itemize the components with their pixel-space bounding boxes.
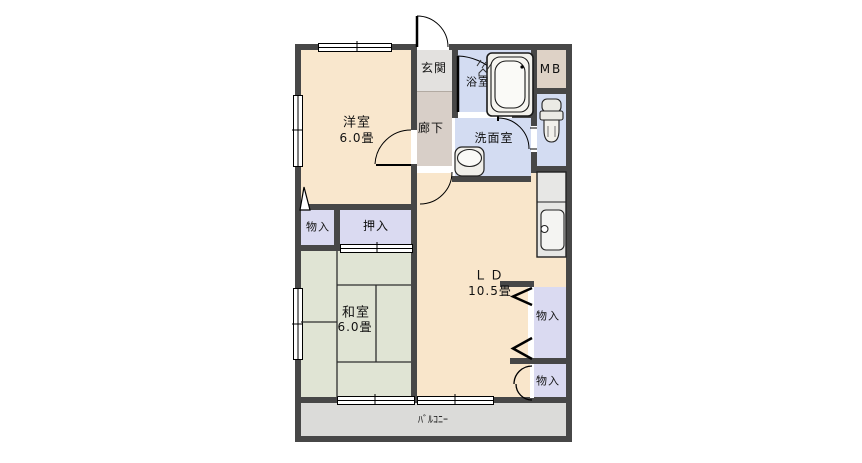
- corridor-ld-door: [420, 172, 452, 204]
- wall-triangle-marker: [300, 187, 310, 210]
- western-room-door: [375, 130, 411, 165]
- window-ticks: [292, 41, 455, 405]
- kitchen-faucet: [541, 226, 548, 233]
- fixtures-and-doors: [0, 0, 862, 463]
- washroom-door: [498, 112, 529, 149]
- bathtub: [487, 53, 533, 116]
- washbasin: [455, 147, 484, 176]
- storage-rb-door: [514, 366, 532, 400]
- toilet: [540, 99, 563, 142]
- toilet-door: [530, 128, 537, 149]
- entrance-door: [417, 16, 448, 47]
- storage-rt-folding-door: [513, 288, 532, 359]
- kitchen-counter: [537, 172, 566, 257]
- floor-plan: 玄関 浴室 MB 廊下 洗面室 洋室 6.0畳 物入 押入 和室 6.0畳 ＬＤ…: [0, 0, 862, 463]
